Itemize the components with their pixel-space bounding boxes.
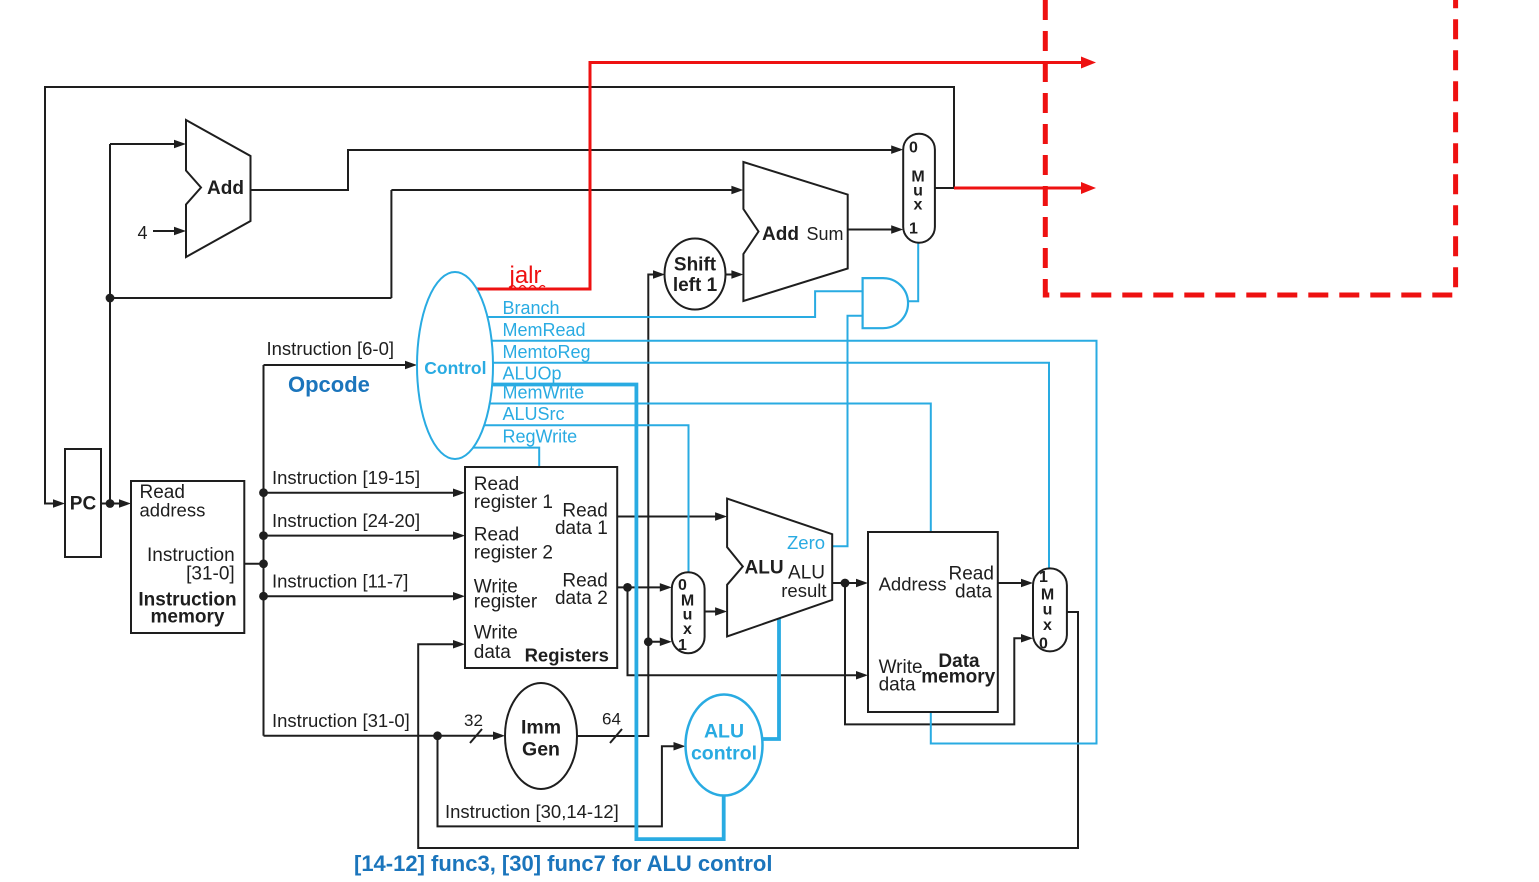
svg-text:memory: memory bbox=[151, 607, 225, 628]
svg-text:Registers: Registers bbox=[525, 645, 609, 666]
svg-text:register: register bbox=[474, 592, 538, 613]
svg-text:register 1: register 1 bbox=[474, 492, 553, 513]
svg-text:ALU: ALU bbox=[745, 558, 784, 579]
svg-text:data: data bbox=[955, 582, 992, 603]
svg-text:MemWrite: MemWrite bbox=[503, 383, 585, 403]
svg-text:x: x bbox=[914, 197, 923, 214]
svg-text:data: data bbox=[879, 675, 916, 696]
svg-text:Opcode: Opcode bbox=[288, 372, 370, 397]
svg-text:Address: Address bbox=[879, 574, 947, 595]
svg-text:0: 0 bbox=[678, 577, 687, 594]
svg-text:1: 1 bbox=[909, 221, 918, 238]
svg-text:left 1: left 1 bbox=[673, 275, 718, 296]
svg-text:MemtoReg: MemtoReg bbox=[503, 342, 591, 362]
svg-text:control: control bbox=[691, 743, 757, 765]
svg-text:PC: PC bbox=[70, 494, 97, 515]
svg-text:jalr: jalr bbox=[509, 262, 542, 289]
svg-text:MemRead: MemRead bbox=[503, 320, 586, 340]
svg-text:Add: Add bbox=[762, 224, 799, 245]
svg-text:u: u bbox=[1043, 602, 1053, 619]
svg-text:Gen: Gen bbox=[522, 739, 560, 761]
svg-text:Instruction [31-0]: Instruction [31-0] bbox=[272, 710, 410, 731]
svg-text:0: 0 bbox=[1039, 636, 1048, 653]
svg-text:0: 0 bbox=[909, 140, 918, 157]
svg-text:RegWrite: RegWrite bbox=[503, 427, 578, 447]
svg-text:data: data bbox=[474, 642, 511, 663]
svg-text:[31-0]: [31-0] bbox=[186, 563, 235, 584]
svg-text:address: address bbox=[140, 499, 206, 520]
svg-text:Imm: Imm bbox=[521, 717, 561, 739]
svg-text:Write: Write bbox=[474, 623, 518, 644]
svg-text:1: 1 bbox=[1039, 569, 1048, 586]
svg-text:[14-12] func3, [30] func7 for: [14-12] func3, [30] func7 for ALU contro… bbox=[354, 851, 772, 876]
svg-text:4: 4 bbox=[138, 223, 148, 243]
svg-text:result: result bbox=[781, 580, 826, 601]
svg-text:Zero: Zero bbox=[787, 532, 825, 553]
svg-text:register 2: register 2 bbox=[474, 543, 553, 564]
svg-text:Instruction [24-20]: Instruction [24-20] bbox=[272, 510, 420, 531]
svg-text:ALUOp: ALUOp bbox=[503, 364, 562, 384]
svg-text:ALUSrc: ALUSrc bbox=[503, 404, 565, 424]
svg-text:memory: memory bbox=[921, 667, 995, 688]
svg-text:ALU: ALU bbox=[704, 721, 744, 743]
svg-text:Branch: Branch bbox=[503, 298, 560, 318]
svg-text:Instruction [30,14-12]: Instruction [30,14-12] bbox=[445, 801, 619, 822]
svg-text:Control: Control bbox=[424, 358, 486, 378]
svg-text:64: 64 bbox=[602, 710, 621, 729]
svg-text:data 1: data 1 bbox=[555, 518, 608, 539]
svg-text:Instruction [11-7]: Instruction [11-7] bbox=[272, 571, 408, 592]
svg-text:Shift: Shift bbox=[674, 255, 717, 276]
svg-text:Sum: Sum bbox=[807, 224, 844, 244]
svg-text:32: 32 bbox=[464, 711, 483, 730]
svg-text:x: x bbox=[683, 621, 692, 638]
svg-text:1: 1 bbox=[678, 637, 687, 654]
svg-text:Add: Add bbox=[207, 178, 244, 199]
svg-text:Instruction [19-15]: Instruction [19-15] bbox=[272, 467, 420, 488]
svg-text:Instruction [6-0]: Instruction [6-0] bbox=[267, 338, 395, 359]
svg-text:x: x bbox=[1043, 617, 1052, 634]
svg-text:data 2: data 2 bbox=[555, 588, 608, 609]
